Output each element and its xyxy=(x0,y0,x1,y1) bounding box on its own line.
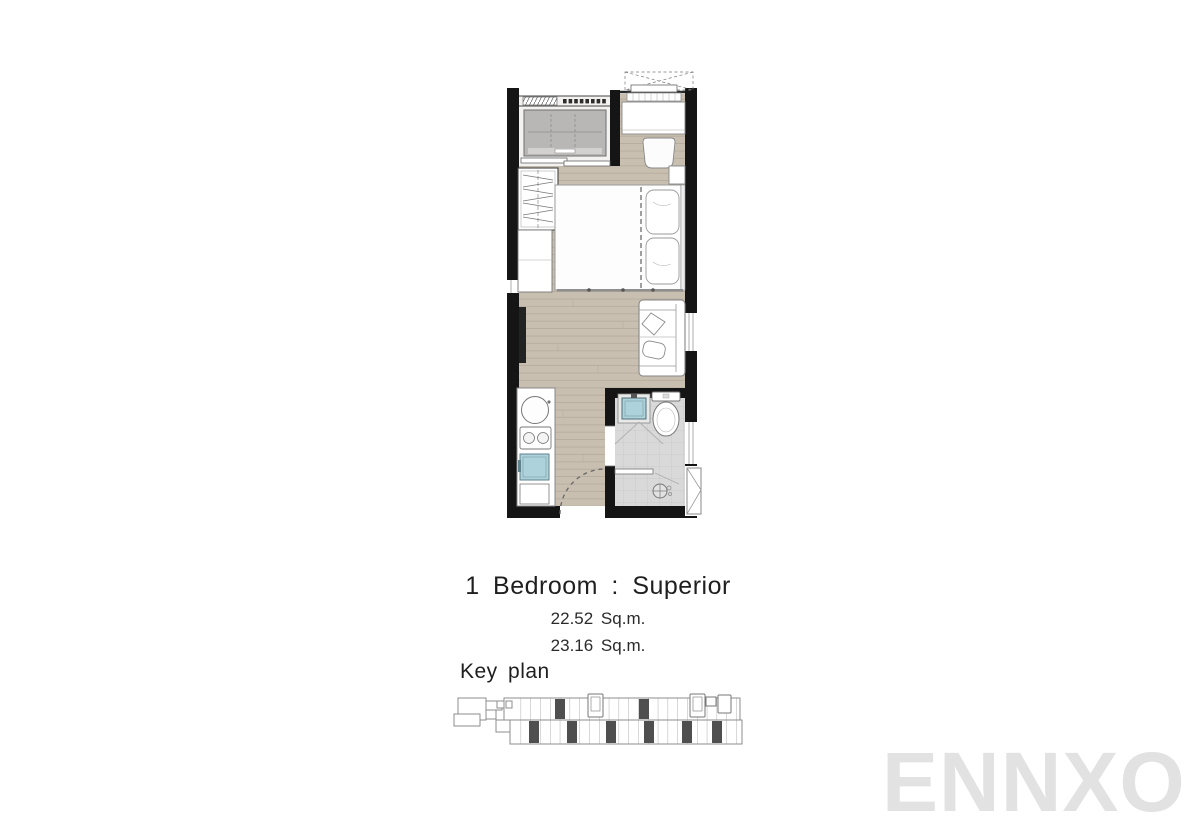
low-cabinet xyxy=(518,230,552,292)
ac-condenser-unit-icon xyxy=(524,110,606,156)
headboard-icon xyxy=(681,185,685,290)
nightstand-icon xyxy=(669,166,685,184)
toilet-icon xyxy=(652,392,680,436)
window-right-living xyxy=(685,313,697,351)
shower-partition-icon xyxy=(615,469,653,474)
floor-plan-drawing xyxy=(503,70,703,520)
pillow-icon xyxy=(646,238,679,284)
caption-block: 1 Bedroom : Superior 22.52 Sq.m. 23.16 S… xyxy=(398,572,798,658)
faucet-icon xyxy=(547,400,550,403)
louver-vent-icon xyxy=(523,97,557,105)
window-left xyxy=(507,280,519,293)
unit-area-line1: 22.52 Sq.m. xyxy=(398,607,798,631)
balcony xyxy=(519,96,610,166)
tv-panel-icon xyxy=(519,307,526,363)
sofa xyxy=(639,300,685,376)
watermark-logo: ENNXO xyxy=(882,740,1186,824)
window-right-bath xyxy=(685,422,697,464)
kitchen-cabinet-icon xyxy=(520,484,549,504)
wardrobe xyxy=(518,168,558,230)
chair-icon xyxy=(643,138,675,168)
kitchen xyxy=(517,388,555,506)
pillow-icon xyxy=(646,190,679,234)
key-plan-label: Key plan xyxy=(460,660,550,684)
bed xyxy=(555,185,685,292)
curtain-box-icon xyxy=(627,93,681,101)
ledge-ac-unit-icon xyxy=(631,85,677,92)
stove-icon xyxy=(520,427,551,449)
bed-foot-rail-icon xyxy=(557,289,683,292)
ac-ledge xyxy=(625,72,693,92)
unit-area-line2: 23.16 Sq.m. xyxy=(398,634,798,658)
desk-icon xyxy=(622,102,685,134)
key-plan-drawing xyxy=(452,690,744,748)
bathroom-door-opening xyxy=(605,426,615,466)
fridge-icon xyxy=(518,454,549,480)
page: 1 Bedroom : Superior 22.52 Sq.m. 23.16 S… xyxy=(0,0,1200,840)
washbasin-icon xyxy=(618,394,650,423)
sink-icon xyxy=(522,397,549,424)
unit-title: 1 Bedroom : Superior xyxy=(398,572,798,601)
service-shaft xyxy=(685,466,701,516)
